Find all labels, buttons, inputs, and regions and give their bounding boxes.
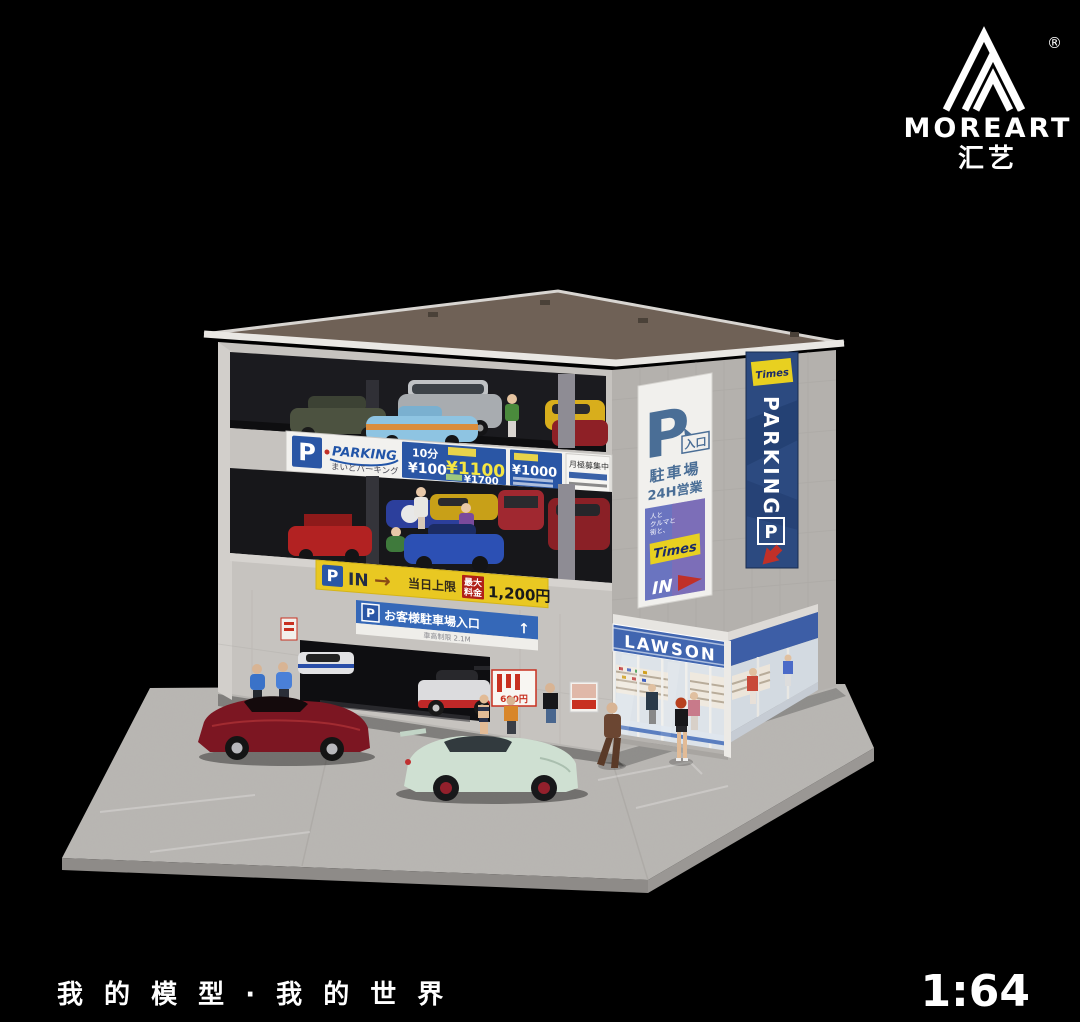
flag-p-letter: P [764,522,777,543]
times-in-label: IN [652,576,673,599]
moreart-mountain-icon [946,34,1022,110]
right-entrance-sign: P 入口 駐車場 24H営業 人と クルマと 街と、 Times IN [638,373,712,608]
brand-name-cn: 汇艺 [958,144,1018,174]
rate-unit: 10分 [412,445,438,461]
roof-vent [428,312,438,317]
floor3-front-pillar [558,374,575,448]
roof-vent [540,300,550,305]
wall-poster-photo [570,682,598,712]
left-corner-trim [218,342,232,700]
parking-p-letter: P [298,438,316,467]
car-red-suv [498,490,544,530]
flag-parking-text: PARKING [759,396,783,517]
parking-garage-building: P PARKING まいどパーキング 10分 ¥100 ¥1100 ¥1700 … [218,342,836,760]
footer-captions: 我 的 模 型 · 我 的 世 界 1:64 [57,966,1030,1017]
entry-arrow: → [374,568,391,593]
brand-registered-mark: ® [1047,34,1062,52]
wall-sliver [230,428,286,472]
car-white-nismo [298,652,354,674]
brand-name: MOREART [904,113,1073,144]
rate-night-tag [446,474,462,481]
store-corner-post [724,640,731,758]
customer-arrow: ↑ [518,621,530,638]
customer-p-letter: P [366,606,375,621]
photo-canvas: P PARKING まいどパーキング 10分 ¥100 ¥1100 ¥1700 … [0,0,1080,1022]
rate-unit-price: ¥100 [408,460,447,479]
entry-p-letter: P [327,566,339,586]
wall-sticker-red [281,618,297,640]
footer-tagline: 我 的 模 型 · 我 的 世 界 [57,979,449,1010]
car-dark-red-group [548,498,610,550]
times-parking-flag: Times PARKING P [746,352,798,571]
floor2-front-pillar [558,484,575,580]
roof-vent [790,332,799,337]
footer-scale-badge: 1:64 [921,966,1030,1017]
brand-logo: ® MOREART 汇艺 [904,34,1073,174]
roof-vent [638,318,648,323]
diorama-photo: P PARKING まいどパーキング 10分 ¥100 ¥1100 ¥1700 … [0,0,1080,1022]
entry-in-label: IN [348,570,369,592]
lawson-front: LAWSON [612,614,728,760]
